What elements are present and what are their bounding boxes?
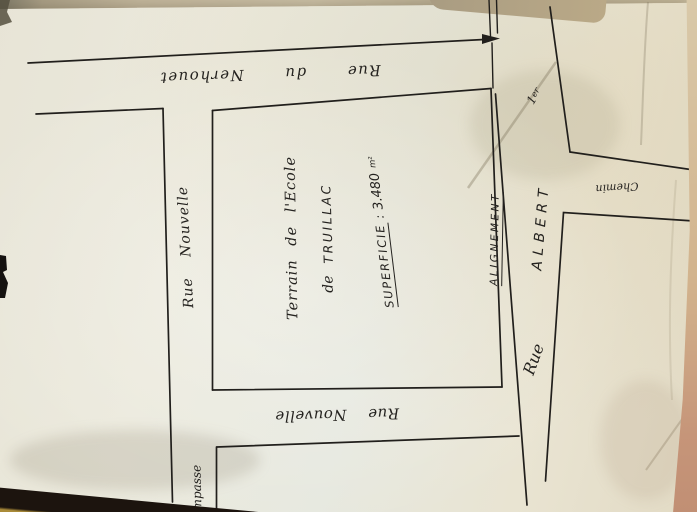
street-lines-top (28, 0, 500, 114)
parcel-title-line1-text: Terrain de l'Ecole (283, 156, 302, 320)
street-label-bottom: Rue Nouvelle (257, 399, 418, 431)
chemin-label-text: Chemin (595, 180, 639, 196)
parcel-outline (213, 89, 503, 391)
street-label-left-text: Rue Nouvelle (175, 185, 197, 308)
scan-artifact (0, 0, 12, 298)
alignment-line (496, 94, 528, 505)
ordinal-suffix: er (534, 89, 539, 97)
area-unit: m² (372, 156, 373, 168)
alignment-label: ALIGNEMENT (487, 179, 505, 299)
photo-of-plan: Rue du Nerhouet Rue Nouvelle Rue Nouvell… (0, 0, 697, 512)
parcel-title-line1: Terrain de l'Ecole (280, 153, 305, 323)
parcel-title-line2-name: TRUILLAC (318, 183, 336, 264)
street-lines-bottom (217, 436, 520, 512)
parcel-title-line2: de TRUILLAC (314, 178, 340, 299)
street-label-bottom-text: Rue Nouvelle (275, 404, 400, 425)
street-label-top-text: Rue du Nerhouet (159, 61, 381, 87)
area-separator: : (372, 214, 386, 220)
area-value: 3.480 (367, 172, 386, 211)
street-lines-left (163, 109, 173, 503)
parcel-title-line2-de: de (320, 275, 337, 293)
alignment-label-text: ALIGNEMENT (488, 192, 504, 286)
impasse-label: Impasse (188, 455, 205, 512)
